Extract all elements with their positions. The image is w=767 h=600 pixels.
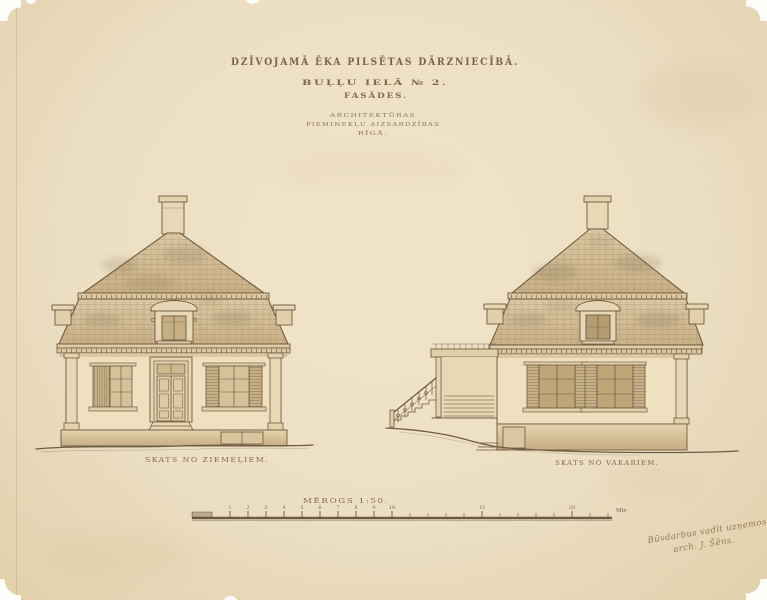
pilaster-left — [64, 353, 79, 430]
corner-finial-right — [273, 305, 295, 325]
upper-roof-cornice — [78, 293, 269, 299]
drawing-sheet: DZĪVOJAMĀ ĒKA PILSĒTAS DĀRZNIECĪBĀ. BUĻĻ… — [0, 0, 767, 600]
scale-tick-label: 3 — [264, 505, 267, 511]
drawing-title: DZĪVOJAMĀ ĒKA PILSĒTAS DĀRZNIECĪBĀ. — [231, 56, 519, 68]
veranda — [431, 344, 498, 424]
left-elevation — [36, 196, 313, 452]
window-left — [89, 363, 137, 411]
window-right — [202, 363, 266, 411]
scale-ticks-minor — [410, 513, 608, 517]
scale-ticks-major — [230, 511, 572, 517]
right-elevation-caption: SKATS NO VAKARIEM. — [555, 459, 659, 467]
title-block: DZĪVOJAMĀ ĒKA PILSĒTAS DĀRZNIECĪBĀ. BUĻĻ… — [231, 56, 519, 137]
scale-tick-label: 6 — [318, 505, 321, 511]
scale-tick-label: 20 — [569, 505, 575, 511]
upper-roof-cornice — [508, 293, 687, 299]
veranda-cresting — [433, 344, 496, 349]
window-left — [523, 362, 589, 412]
scale-tick-label: 7 — [336, 505, 339, 511]
pilaster-right — [674, 354, 689, 424]
foundation — [476, 424, 687, 450]
scale-bar: MĒROGS 1:50. 1 2 3 4 5 6 7 8 9 10 15 — [192, 496, 628, 521]
right-elevation — [386, 196, 738, 455]
corner-finial-left — [52, 305, 74, 325]
scale-tick-label: 1 — [228, 505, 231, 511]
entrance-door — [150, 357, 192, 422]
corner-finial-left — [484, 304, 506, 324]
drawing-subtitle-fasades: FASĀDES. — [344, 91, 408, 100]
stamp-line-1: ARCHITEKTŪRAS — [329, 112, 416, 119]
scale-caption: MĒROGS 1:50. — [303, 496, 389, 505]
veranda-post — [436, 357, 441, 417]
chimney — [584, 196, 611, 229]
newel-post — [390, 410, 394, 427]
architectural-drawing: DZĪVOJAMĀ ĒKA PILSĒTAS DĀRZNIECĪBĀ. BUĻĻ… — [0, 0, 767, 600]
stamp-line-3: RĪGĀ. — [358, 130, 388, 137]
scale-subdivision — [192, 512, 212, 518]
window-right — [581, 362, 647, 412]
left-elevation-caption: SKATS NO ZIEMEĻIEM. — [145, 456, 269, 464]
scale-unit-label: Mtr. — [616, 508, 628, 514]
ground-line-faint — [40, 448, 310, 452]
foundation — [61, 430, 287, 446]
handwritten-note: Būvdarbus vadīt uzņemos arch. J. Šēns. — [646, 517, 767, 559]
scale-tick-label: 9 — [372, 505, 375, 511]
dormer-window — [151, 301, 197, 345]
scale-tick-label: 15 — [479, 505, 485, 511]
chimney — [159, 196, 187, 234]
window-sill — [89, 407, 137, 411]
scale-tick-label: 4 — [282, 505, 285, 511]
stamp-line-2: PIEMINEKĻU AIZSARDZĪBAS — [306, 121, 440, 128]
veranda-roof — [431, 349, 498, 357]
scale-tick-label: 2 — [246, 505, 249, 511]
corner-finial-right — [686, 304, 708, 324]
drawing-subtitle-street: BUĻĻU IELĀ № 2. — [302, 78, 448, 87]
pilaster-right — [268, 353, 283, 430]
scale-tick-label: 10 — [389, 505, 395, 511]
window-sill — [581, 408, 647, 412]
window-sill — [202, 407, 266, 411]
scale-tick-label: 8 — [354, 505, 357, 511]
exterior-steps — [394, 400, 436, 424]
basement-hatch — [503, 427, 525, 448]
scale-tick-label: 5 — [300, 505, 303, 511]
window-sill — [523, 408, 589, 412]
dormer-window — [576, 301, 620, 345]
